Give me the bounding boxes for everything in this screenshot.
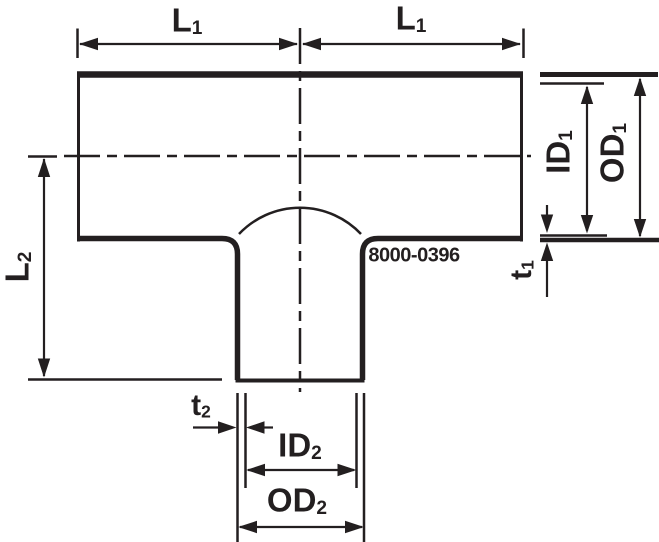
label-l2: L2 <box>1 252 34 283</box>
arrowhead <box>345 521 364 533</box>
centerlines <box>64 28 531 392</box>
arrowhead <box>279 38 298 50</box>
dim-id1 <box>581 86 593 234</box>
drawing-svg <box>0 0 659 542</box>
label-od1: OD1 <box>596 123 629 183</box>
arrowhead <box>79 38 98 50</box>
arrowhead <box>502 38 521 50</box>
label-t2: t2 <box>191 391 211 421</box>
dim-od1 <box>634 78 646 238</box>
arrowhead <box>238 521 257 533</box>
arrowhead <box>218 421 237 433</box>
label-od2: OD2 <box>267 484 327 517</box>
dim-t1 <box>541 205 553 297</box>
arrowhead <box>302 38 321 50</box>
part-number: 8000-0396 <box>368 245 459 268</box>
dim-t2 <box>193 421 273 433</box>
arrowhead <box>634 219 646 238</box>
label-l1-left: L1 <box>172 4 203 37</box>
arrowhead <box>38 158 50 177</box>
arrowhead <box>246 464 265 476</box>
arrowhead <box>541 243 553 262</box>
label-l1-right: L1 <box>396 2 427 35</box>
label-id2: ID2 <box>278 429 322 462</box>
tee-fitting-drawing: L1 L1 L2 ID1 OD1 t1 t2 ID2 OD2 8000-0396 <box>0 0 659 542</box>
dim-l2 <box>28 157 222 380</box>
arrowhead <box>581 215 593 234</box>
run-bottom-left-and-branch-left-wall <box>77 239 238 381</box>
dim-id2 <box>246 464 357 476</box>
dim-od2 <box>238 521 364 533</box>
arrowhead <box>246 421 265 433</box>
label-id1: ID1 <box>542 130 575 174</box>
arrowhead <box>634 78 646 97</box>
arrowhead <box>541 215 553 234</box>
arrowhead <box>338 464 357 476</box>
label-t1: t1 <box>507 260 537 280</box>
arrowhead <box>581 86 593 105</box>
arrowhead <box>38 359 50 378</box>
